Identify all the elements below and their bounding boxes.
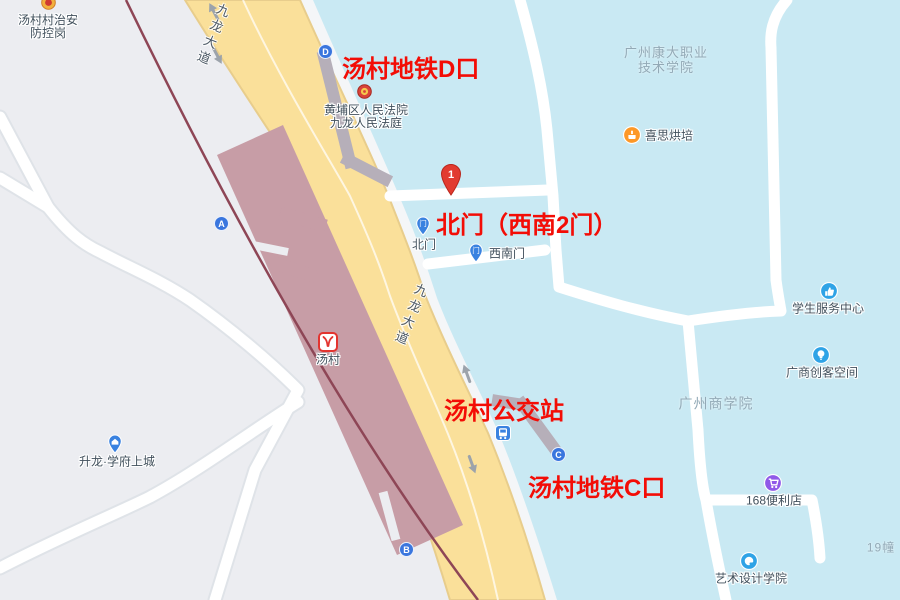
svg-text:门: 门	[472, 246, 480, 255]
poi-label-student-center[interactable]: 学生服务中心	[792, 303, 864, 316]
annotation-metro-exit-c: 汤村地铁C口	[528, 468, 665, 503]
svg-text:门: 门	[419, 219, 427, 228]
gate-label-southwest[interactable]: 西南门	[489, 248, 525, 261]
southwest-gate-icon[interactable]: 门	[467, 243, 485, 263]
metro-station-label[interactable]: 汤村	[316, 354, 340, 367]
annotation-metro-exit-d: 汤村地铁D口	[342, 49, 479, 84]
area-label-kangda-college: 广州康大职业 技术学院	[624, 45, 708, 75]
store-cart-icon[interactable]	[764, 474, 782, 492]
poi-label-court[interactable]: 黄埔区人民法院 九龙人民法庭	[324, 104, 408, 130]
police-badge-icon[interactable]	[41, 0, 56, 10]
art-school-palette-icon[interactable]	[740, 552, 758, 570]
location-pin-1[interactable]: 1	[438, 163, 464, 197]
poi-label-art-school[interactable]: 艺术设计学院	[715, 573, 787, 586]
annotation-north-gate: 北门（西南2门）	[436, 205, 617, 240]
student-center-icon[interactable]	[820, 282, 838, 300]
svg-text:1: 1	[448, 169, 454, 181]
poi-label-residence[interactable]: 升龙·学府上城	[79, 456, 155, 469]
metro-exit-c-marker[interactable]: C	[551, 447, 566, 462]
metro-station-icon[interactable]	[318, 332, 338, 352]
residence-pin-icon[interactable]	[106, 434, 124, 454]
makerspace-bulb-icon[interactable]	[812, 346, 830, 364]
bakery-icon[interactable]	[623, 126, 641, 144]
poi-label-store[interactable]: 168便利店	[746, 495, 802, 508]
gate-label-north[interactable]: 北门	[412, 239, 436, 252]
bus-stop-icon[interactable]	[495, 425, 511, 441]
court-emblem-icon[interactable]	[357, 84, 372, 99]
area-label-business-college: 广州商学院	[679, 397, 754, 412]
metro-exit-b-marker[interactable]: B	[399, 542, 414, 557]
poi-label-police[interactable]: 汤村村治安 防控岗	[18, 14, 78, 40]
annotation-bus-station: 汤村公交站	[444, 391, 564, 426]
map-canvas[interactable]: 九龙大道 九龙大道 广州康大职业 技术学院 广州商学院 19幢 汤村村治安 防控…	[0, 0, 900, 600]
metro-exit-a-marker[interactable]: A	[214, 216, 229, 231]
metro-exit-d-marker[interactable]: D	[318, 44, 333, 59]
poi-label-makerspace[interactable]: 广商创客空间	[786, 367, 858, 380]
poi-label-bakery[interactable]: 喜思烘培	[645, 130, 693, 143]
base-map-layer	[0, 0, 900, 600]
north-gate-icon[interactable]: 门	[414, 216, 432, 236]
area-label-building-19: 19幢	[867, 541, 895, 556]
